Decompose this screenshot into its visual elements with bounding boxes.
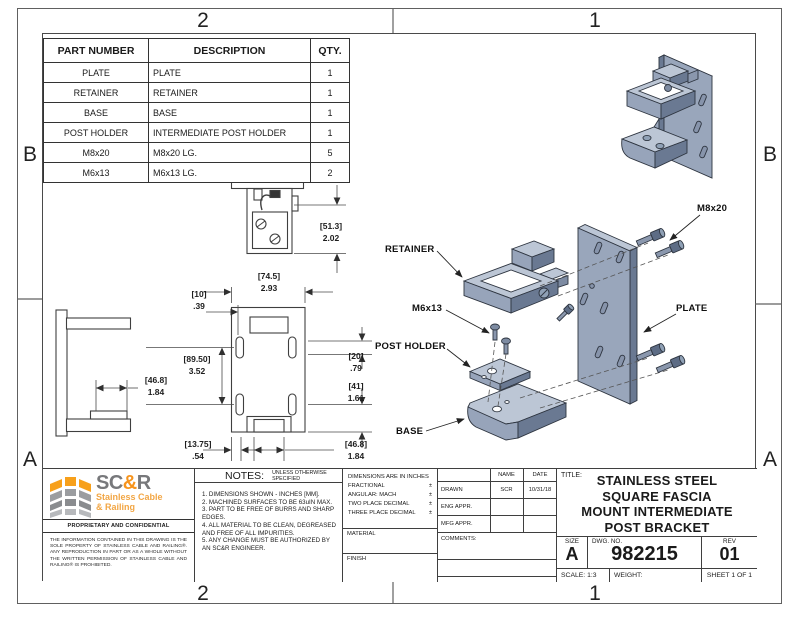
notes-subtitle: UNLESS OTHERWISE SPECIFIED [272,470,342,482]
table-cell: PLATE [149,63,311,83]
dimension-width-74: [74.5]2.93 [249,271,289,294]
table-cell: 5 [311,143,349,163]
parts-table-header-part-number: PART NUMBER [44,39,149,63]
parts-table-header-qty: QTY. [311,39,349,63]
title-block: SC&R Stainless Cable & Railing PROPRIETA… [43,468,757,582]
tolerance-heading: DIMENSIONS ARE IN INCHES [348,473,432,482]
approvals-date-header: DATE [523,469,557,481]
table-cell: 1 [311,103,349,123]
size-value: A [557,545,587,563]
note-item: 4. ALL MATERIAL TO BE CLEAN, DEGREASED A… [202,522,336,537]
parts-table-header-description: DESCRIPTION [149,39,311,63]
table-cell: INTERMEDIATE POST HOLDER [149,123,311,143]
dimension-offset-13: [13.75].54 [178,439,218,462]
company-logo: SC&R Stainless Cable & Railing [43,469,194,519]
dimension-height-89: [89.50]3.52 [178,354,216,377]
dimension-offset-41: [41]1.61 [338,381,374,404]
approval-row-label: DRAWN [438,481,490,498]
logo-cell: SC&R Stainless Cable & Railing PROPRIETA… [43,469,195,582]
table-cell: RETAINER [149,83,311,103]
table-cell: RETAINER [44,83,149,103]
exploded-label-retainer: RETAINER [385,244,434,255]
railing-logo-icon [48,474,92,518]
dwg-no-value: 982215 [588,545,701,563]
approval-row-label: ENG APPR. [438,498,490,515]
rev-value: 01 [702,545,757,563]
parts-table: PART NUMBER DESCRIPTION QTY. PLATE PLATE… [43,38,350,183]
note-item: 5. ANY CHANGE MUST BE AUTHORIZED BY AN S… [202,537,336,552]
approvals-cell: NAME DATE DRAWN SCR 10/31/18 ENG APPR. M… [438,469,557,582]
dimension-height-51: [51.3]2.02 [312,221,350,244]
table-cell: M6x13 [44,163,149,182]
table-cell: M6x13 LG. [149,163,311,182]
notes-cell: NOTES: UNLESS OTHERWISE SPECIFIED 1. DIM… [195,469,343,582]
notes-title: NOTES: [225,470,264,482]
note-item: 2. MACHINED SURFACES TO BE 63uIN MAX. [202,499,336,507]
scale-text: SCALE: 1:3 [557,569,610,582]
size-dwg-rev-row: SIZE A DWG. NO. 982215 REV 01 [557,536,757,568]
approval-row-name: SCR [490,481,523,498]
exploded-label-m6x13: M6x13 [412,303,442,314]
logo-acronym: SC&R [96,474,163,493]
table-cell: 2 [311,163,349,182]
table-cell: BASE [44,103,149,123]
scale-weight-sheet-row: SCALE: 1:3 WEIGHT: SHEET 1 OF 1 [557,568,757,582]
tolerance-cell: DIMENSIONS ARE IN INCHES FRACTIONAL± ANG… [343,469,438,582]
finish-field: FINISH [343,554,437,564]
sheet-text: SHEET 1 OF 1 [702,569,757,582]
dimension-offset-20: [20].79 [338,351,374,374]
table-cell: 1 [311,123,349,143]
drawing-sheet: 2 1 2 1 B A B A [0,0,800,618]
table-cell: BASE [149,103,311,123]
comments-label: COMMENTS: [438,532,557,546]
table-cell: M8x20 [44,143,149,163]
approval-row-label: MFG APPR. [438,515,490,532]
approvals-name-header: NAME [490,469,523,481]
exploded-label-base: BASE [396,426,423,437]
tolerance-table: DIMENSIONS ARE IN INCHES FRACTIONAL± ANG… [343,469,437,529]
exploded-label-plate: PLATE [676,303,707,314]
drawing-title: STAINLESS STEEL SQUARE FASCIA MOUNT INTE… [557,473,757,535]
proprietary-label: PROPRIETARY AND CONFIDENTIAL [43,519,194,533]
table-cell: M8x20 LG. [149,143,311,163]
table-cell: PLATE [44,63,149,83]
exploded-label-m8x20: M8x20 [697,203,727,214]
table-cell: 1 [311,83,349,103]
weight-text: WEIGHT: [610,569,702,582]
dimension-width-46-side: [46.8]1.84 [136,375,176,398]
dimension-width-46-front: [46.8]1.84 [336,439,376,462]
table-cell: POST HOLDER [44,123,149,143]
notes-list: 1. DIMENSIONS SHOWN - INCHES [MM]. 2. MA… [195,483,342,553]
logo-line2: & Railing [96,503,163,513]
note-item: 3. PART TO BE FREE OF BURRS AND SHARP ED… [202,506,336,521]
approval-row-date: 10/31/18 [523,481,557,498]
material-field: MATERIAL [343,529,437,554]
table-cell: 1 [311,63,349,83]
exploded-label-post-holder: POST HOLDER [375,341,446,352]
title-number-cell: TITLE: STAINLESS STEEL SQUARE FASCIA MOU… [557,469,757,582]
note-item: 1. DIMENSIONS SHOWN - INCHES [MM]. [202,491,336,499]
dimension-offset-10: [10].39 [180,289,218,312]
confidentiality-disclaimer: THE INFORMATION CONTAINED IN THIS DRAWIN… [43,533,194,574]
